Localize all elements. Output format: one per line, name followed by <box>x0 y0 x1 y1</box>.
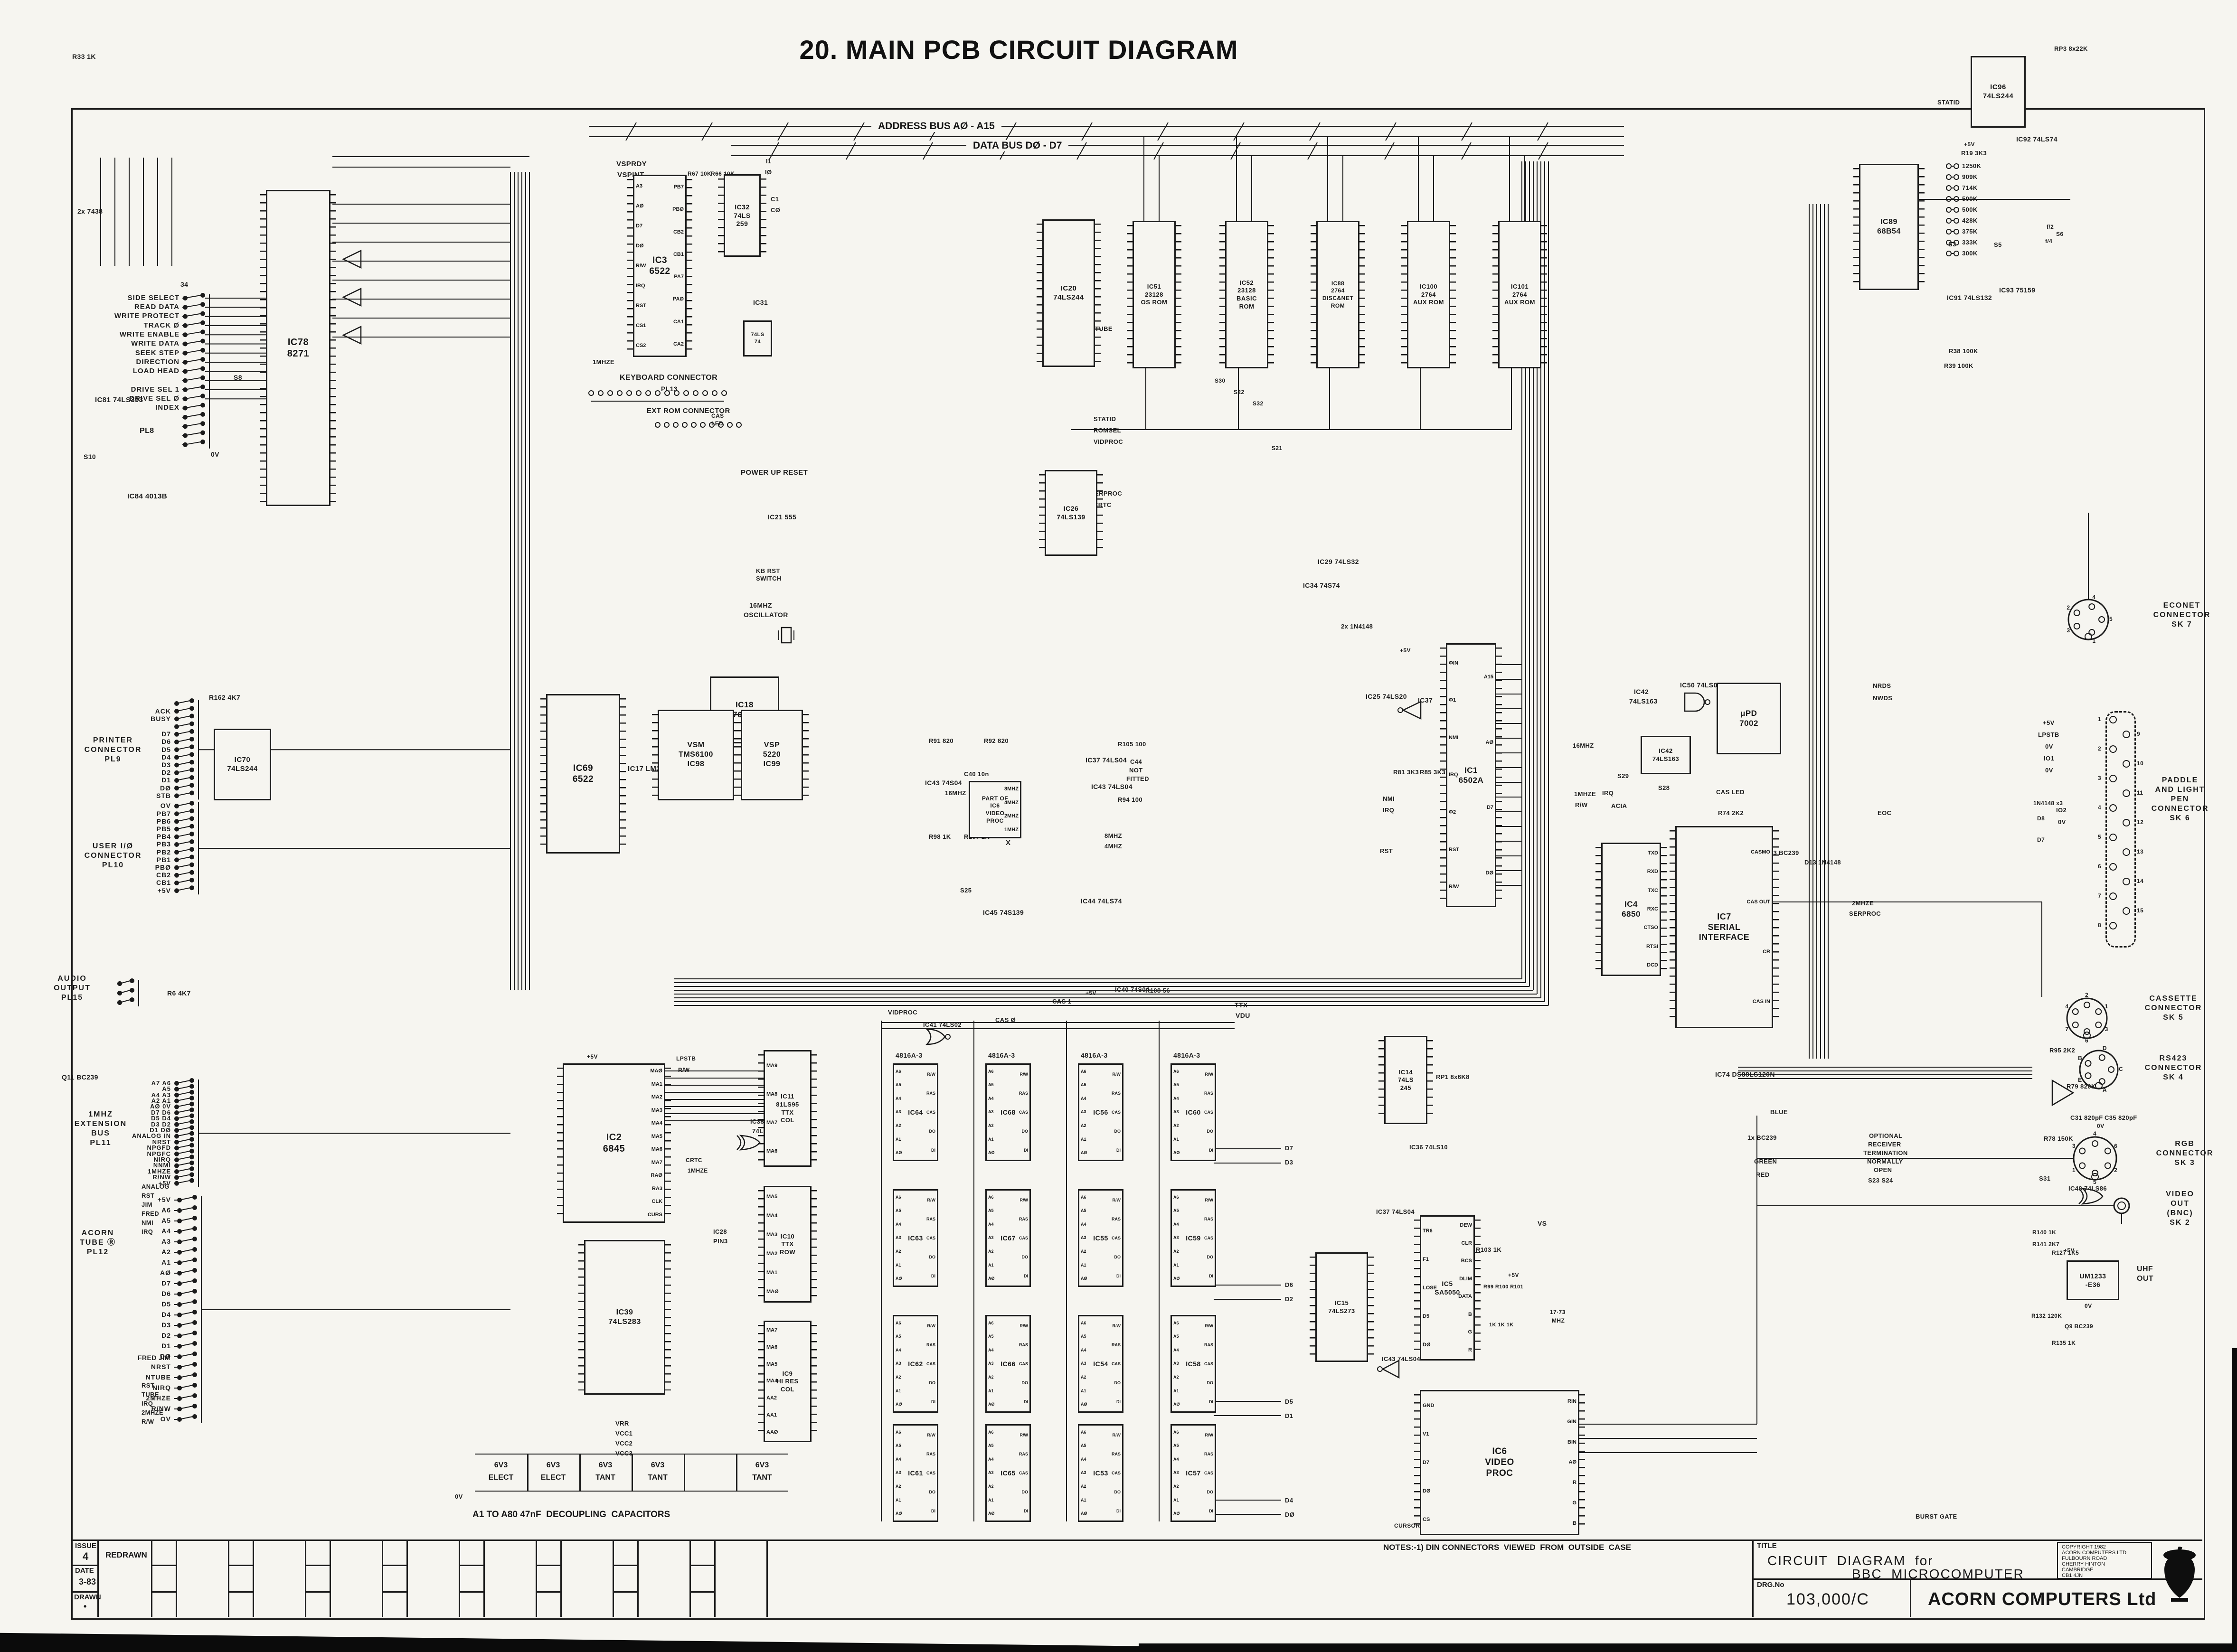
pin-stubs <box>685 179 692 353</box>
pin-name: A3 <box>896 1236 901 1240</box>
pin-name: RAS <box>1204 1343 1213 1347</box>
pin-name: A3 <box>988 1110 994 1114</box>
cap-spec: TANT <box>632 1474 684 1482</box>
pin-name: DI <box>1209 1509 1213 1513</box>
cap-spec: 6V3 <box>579 1461 632 1470</box>
ic-label: IC99 <box>764 760 781 769</box>
pin-name: DI <box>1209 1148 1213 1153</box>
pin-name: CAS <box>926 1471 935 1475</box>
pin-name: A1 <box>896 1137 901 1142</box>
ic-label: ROW <box>780 1249 795 1256</box>
ic-label: IC62 <box>908 1361 923 1368</box>
ic-label: UM1233 <box>2080 1273 2106 1280</box>
pin-name: A5 <box>988 1444 994 1448</box>
ic-label: IC9 <box>783 1370 793 1377</box>
pin-stubs <box>1267 225 1274 364</box>
pin-stubs <box>1310 1257 1317 1358</box>
pin-name: A6 <box>988 1070 994 1074</box>
pin-name: V1 <box>1423 1432 1429 1437</box>
ic-block-ic7: IC7SERIALINTERFACECASMOCAS OUTCRCAS IN <box>1675 826 1773 1028</box>
ic-block-ic98: VSMTMS6100IC98 <box>658 710 734 800</box>
pin-name: AA1 <box>766 1413 777 1418</box>
pin-name: A1 <box>896 1389 901 1393</box>
pin-name: A3 <box>1173 1361 1179 1366</box>
pin-name: A4 <box>1081 1097 1086 1101</box>
ic-label: 5220 <box>763 751 781 759</box>
ic-label: 259 <box>736 220 748 227</box>
pin-names: R/WRASCASDODI <box>926 1426 935 1521</box>
pin-stubs <box>627 179 634 353</box>
pin-stubs <box>1440 648 1447 903</box>
ic-label: 81LS95 <box>776 1101 799 1108</box>
ic-label: ROM <box>1331 303 1345 309</box>
pin-stubs <box>1772 830 1779 1024</box>
ic-label: 74LS163 <box>1652 756 1679 762</box>
pin-name: A5 <box>1081 1334 1086 1339</box>
pin-name: RAS <box>1112 1091 1121 1096</box>
pin-name: DO <box>1207 1255 1214 1259</box>
pin-name: DCD <box>1647 963 1658 968</box>
pin-stubs <box>802 714 809 796</box>
pin-stubs <box>1473 1220 1481 1356</box>
pin-name: AØ <box>896 1277 902 1281</box>
ic-label: IC101 <box>1511 283 1529 290</box>
pin-name: CAS <box>1019 1110 1028 1115</box>
pin-name: A5 <box>896 1444 901 1448</box>
pin-name: PA7 <box>674 274 684 280</box>
pin-names: PB7PBØCB2CB1PA7PAØCA1CA2 <box>672 176 684 356</box>
pin-names: R/WRASCASDODI <box>1112 1191 1121 1286</box>
pin-name: MA1 <box>766 1270 777 1276</box>
pin-name: 1MHZ <box>1004 827 1019 833</box>
ic-label: IC58 <box>1186 1361 1201 1368</box>
ic-block-ic101: IC1012764AUX ROM <box>1498 221 1541 368</box>
ic-label: TTX <box>781 1241 793 1248</box>
pin-name: DI <box>1116 1509 1121 1513</box>
ram-chip-ic66: IC66A6A5A4A3A2A1AØR/WRASCASDODI <box>985 1315 1031 1413</box>
pin-name: CA1 <box>673 319 684 325</box>
pin-names: DEWCLRBCSDLIMDATABGR <box>1458 1217 1472 1359</box>
pin-name: A1 <box>1081 1498 1086 1502</box>
pin-name: R/W <box>1205 1433 1214 1437</box>
pin-name: B <box>1468 1312 1472 1317</box>
pin-names: R/WRASCASDODI <box>1019 1316 1028 1411</box>
ic-label: IC98 <box>688 760 705 769</box>
pin-name: A5 <box>988 1334 994 1339</box>
pin-name: 4MHZ <box>1004 800 1019 806</box>
pin-name: A1 <box>1173 1498 1179 1502</box>
pin-name: MA5 <box>766 1362 777 1367</box>
pin-name: A5 <box>1173 1334 1179 1339</box>
pin-name: A5 <box>988 1083 994 1087</box>
pin-names: R/WRASCASDODI <box>1204 1191 1213 1286</box>
pin-stubs <box>1449 225 1456 364</box>
pin-name: MA6 <box>766 1345 777 1350</box>
ic-label: IC67 <box>1001 1235 1016 1242</box>
pin-name: DO <box>1207 1490 1214 1494</box>
ic-block-ic70: IC7074LS244 <box>214 729 271 800</box>
cap-spec: TANT <box>736 1474 788 1482</box>
pin-name: A2 <box>1081 1124 1086 1128</box>
pin-name: DO <box>1022 1381 1029 1385</box>
ic-label: DISC&NET <box>1322 295 1353 301</box>
pin-stubs <box>1378 1040 1386 1120</box>
pin-name: DO <box>1022 1255 1029 1259</box>
pin-name: R/W <box>1020 1324 1029 1328</box>
pin-name: A5 <box>1081 1209 1086 1213</box>
cap-spec: 6V3 <box>527 1461 579 1470</box>
pin-name: MA1 <box>651 1082 662 1087</box>
pin-name: AØ <box>988 1511 995 1516</box>
pin-name: A1 <box>1081 1137 1086 1142</box>
pin-name: D7 <box>1423 1460 1429 1465</box>
pin-name: MA4 <box>651 1121 662 1126</box>
pin-names: A6A5A4A3A2A1AØ <box>896 1065 902 1160</box>
pin-name: DI <box>931 1509 935 1513</box>
pin-name: A5 <box>988 1209 994 1213</box>
cap-spec: TANT <box>579 1474 632 1482</box>
pin-name: R/W <box>1113 1198 1121 1202</box>
ic-label: IC10 <box>781 1233 794 1240</box>
pin-name: R/W <box>1113 1072 1121 1077</box>
ic-label: IC6 <box>990 803 1000 809</box>
pin-name: A6 <box>1081 1070 1086 1074</box>
pin-names: TXDRXDTXCRXCCTSORTSIDCD <box>1643 844 1658 975</box>
ic-label: HI RES <box>776 1378 798 1385</box>
pin-name: GND <box>1423 1403 1434 1408</box>
pin-name: CB2 <box>673 230 684 235</box>
pin-name: DØ <box>1486 871 1494 876</box>
pin-stubs <box>1917 168 1925 286</box>
ic-label: AUX ROM <box>1413 299 1444 306</box>
pin-name: A2 <box>1173 1484 1179 1489</box>
ic-block-ic100: IC1002764AUX ROM <box>1407 221 1450 368</box>
pin-name: CAS <box>926 1362 935 1366</box>
ic-label: IC63 <box>908 1235 923 1242</box>
pin-name: DI <box>931 1400 935 1404</box>
pin-name: R/W <box>1020 1433 1029 1437</box>
pin-name: CAS <box>1112 1362 1121 1366</box>
pin-stubs <box>810 1190 817 1298</box>
ic-label: OS ROM <box>1141 299 1168 306</box>
pin-name: DO <box>1022 1490 1029 1494</box>
pin-stubs <box>329 194 336 502</box>
ic-label: 74LS139 <box>1057 514 1085 521</box>
pin-name: DØ <box>636 244 644 249</box>
pin-name: R/W <box>1113 1433 1121 1437</box>
pin-name: TXC <box>1648 888 1658 893</box>
pin-name: RAS <box>1112 1217 1121 1221</box>
ic-block-ic6: IC6VIDEOPROCGNDV1D7DØCSRINGINBINAØRGB <box>1420 1390 1579 1535</box>
pin-name: CAS <box>1204 1471 1213 1475</box>
acorn-logo-icon <box>2160 1547 2200 1604</box>
pin-name: AØ <box>1173 1402 1180 1407</box>
pin-name: R/W <box>927 1433 936 1437</box>
pin-stubs <box>759 178 766 253</box>
pin-name: AØ <box>1173 1277 1180 1281</box>
ic-block-ic20: IC2074LS244 <box>1042 219 1095 367</box>
ic-label: SERIAL <box>1708 923 1740 932</box>
pin-name: A6 <box>1173 1070 1179 1074</box>
ram-chip-ic64: IC64A6A5A4A3A2A1AØR/WRASCASDODI <box>893 1063 938 1161</box>
pin-name: A6 <box>988 1321 994 1325</box>
ic-block-ic42: IC4274LS163 <box>1641 736 1691 774</box>
ic-label: IC68 <box>1001 1109 1016 1116</box>
pin-name: 2MHZ <box>1004 814 1019 819</box>
ic-label: IC4 <box>1624 900 1638 909</box>
ic-label: 7002 <box>1739 719 1758 728</box>
pin-stubs <box>1853 168 1860 286</box>
ic-label: IC32 <box>735 204 750 211</box>
pin-name: A2 <box>896 1124 901 1128</box>
pin-name: A2 <box>896 1484 901 1489</box>
pin-name: CASMO <box>1751 850 1770 855</box>
pin-stubs <box>1401 225 1408 364</box>
pin-name: R <box>1468 1348 1472 1353</box>
address-bus-label: ADDRESS BUS AØ - A15 <box>871 121 1001 132</box>
pin-name: RST <box>636 303 646 309</box>
pin-name: CAS <box>1204 1236 1213 1240</box>
ic-label: 2764 <box>1331 288 1345 294</box>
pin-stubs <box>1660 847 1667 972</box>
pin-stubs <box>735 714 742 796</box>
pin-name: A5 <box>1173 1444 1179 1448</box>
ic-label: 2764 <box>1421 291 1436 298</box>
pin-name: RAS <box>1019 1091 1028 1096</box>
ic-label: IC61 <box>908 1470 923 1477</box>
pin-name: AØ <box>896 1511 902 1516</box>
pin-names: R/WRASCASDODI <box>1112 1065 1121 1160</box>
ic-label: IC69 <box>573 764 593 773</box>
ic-label: 68B54 <box>1877 228 1901 236</box>
pin-stubs <box>260 194 267 502</box>
pin-name: BIN <box>1567 1440 1576 1445</box>
pin-names: R/WRASCASDODI <box>926 1065 935 1160</box>
pin-name: R/W <box>1205 1198 1214 1202</box>
ram-chip-ic57: IC57A6A5A4A3A2A1AØR/WRASCASDODI <box>1170 1424 1216 1522</box>
pin-name: CAS <box>1019 1362 1028 1366</box>
pin-name: AØ <box>1081 1277 1087 1281</box>
pin-names: 8MHZ4MHZ2MHZ1MHZ <box>1004 782 1019 837</box>
pin-names: ΦINΦ1NMIIRQΦ2RSTR/W <box>1449 645 1459 906</box>
pin-name: ΦIN <box>1449 661 1458 666</box>
copyright-line: CHERRY HINTON <box>2062 1561 2105 1567</box>
pin-name: DI <box>931 1274 935 1278</box>
pin-name: A2 <box>1081 1249 1086 1254</box>
pin-name: A4 <box>896 1222 901 1227</box>
pin-name: A1 <box>1081 1263 1086 1267</box>
pin-name: NMI <box>1449 735 1458 741</box>
ic-label: IC70 <box>235 756 251 764</box>
cap-spec: ELECT <box>475 1474 527 1482</box>
ic-label: IC89 <box>1880 218 1897 226</box>
table-divider <box>736 1455 737 1491</box>
pin-name: RAS <box>926 1217 935 1221</box>
ic-label: VSP <box>764 742 780 750</box>
copyright-line: CAMBRIDGE <box>2062 1567 2094 1573</box>
pin-name: CAS <box>1112 1110 1121 1115</box>
pin-name: A1 <box>1173 1389 1179 1393</box>
ic-label: SA5050 <box>1435 1289 1460 1296</box>
pin-name: MA6 <box>766 1149 777 1154</box>
ic-label: 6502A <box>1459 776 1484 785</box>
pin-name: DØ <box>1423 1342 1431 1348</box>
pin-stubs <box>758 1054 765 1163</box>
pin-name: A6 <box>896 1430 901 1435</box>
pin-name: MAØ <box>766 1289 779 1295</box>
pin-name: A2 <box>1173 1124 1179 1128</box>
ic-label: IC59 <box>1186 1235 1201 1242</box>
pin-name: CLK <box>651 1199 662 1204</box>
pin-name: RXD <box>1647 869 1658 874</box>
pin-name: A3 <box>896 1361 901 1366</box>
pin-name: A2 <box>988 1249 994 1254</box>
ram-chip-ic54: IC54A6A5A4A3A2A1AØR/WRASCASDODI <box>1078 1315 1123 1413</box>
pin-name: CA2 <box>673 342 684 347</box>
pin-name: DO <box>929 1490 936 1494</box>
pin-name: A2 <box>988 1124 994 1128</box>
ram-chip-ic65: IC65A6A5A4A3A2A1AØR/WRASCASDODI <box>985 1424 1031 1522</box>
ic-label: 74LS <box>1398 1077 1414 1083</box>
pin-name: B <box>1573 1521 1576 1526</box>
ic-label: IC56 <box>1093 1109 1108 1116</box>
ic-label: 74 <box>755 339 761 345</box>
pin-stubs <box>1414 1220 1421 1356</box>
pin-name: A4 <box>1081 1348 1086 1352</box>
pin-name: A1 <box>1173 1137 1179 1142</box>
table-divider <box>579 1455 581 1491</box>
pin-name: A4 <box>1173 1348 1179 1352</box>
pin-name: AØ <box>988 1277 995 1281</box>
pin-name: A1 <box>988 1263 994 1267</box>
ic-label: IC26 <box>1064 505 1079 512</box>
pin-name: A4 <box>988 1222 994 1227</box>
ic-block-ic6clk: PART OFIC6VIDEOPROC8MHZ4MHZ2MHZ1MHZ <box>969 781 1021 838</box>
ic-block-ic69: IC696522 <box>546 694 620 854</box>
pin-stubs <box>1495 648 1502 903</box>
ic-block-ic15: IC1574LS273 <box>1315 1252 1368 1362</box>
pin-name: CLR <box>1461 1241 1472 1246</box>
ic-label: 6845 <box>603 1144 625 1154</box>
cap-spec: 6V3 <box>736 1461 788 1470</box>
pin-name: A3 <box>636 184 642 189</box>
ic-label: 74LS <box>751 332 764 338</box>
pin-name: DI <box>1116 1400 1121 1404</box>
pin-names: MAØMA1MA2MA3MA4MA5MA6MA7RAØRA3CLKCURS <box>648 1065 662 1221</box>
pin-names: CASMOCAS OUTCRCAS IN <box>1747 827 1771 1027</box>
pin-name: A3 <box>988 1471 994 1475</box>
pin-name: A3 <box>896 1471 901 1475</box>
pin-name: DI <box>1116 1148 1121 1153</box>
pin-name: A3 <box>1081 1110 1086 1114</box>
pin-name: CR <box>1763 949 1770 955</box>
ic-label: 6522 <box>573 775 594 784</box>
ic-label: VIDEO <box>986 810 1005 817</box>
ic-label: 8271 <box>287 349 310 359</box>
pin-name: RAS <box>1019 1343 1028 1347</box>
ic-label: ROM <box>1239 303 1255 310</box>
pin-name: A1 <box>988 1137 994 1142</box>
ic-label: PROC <box>986 818 1004 824</box>
ram-chip-ic59: IC59A6A5A4A3A2A1AØR/WRASCASDODI <box>1170 1189 1216 1287</box>
pin-name: DI <box>1024 1509 1028 1513</box>
ic-label: COL <box>781 1386 794 1393</box>
pin-name: RIN <box>1567 1399 1576 1404</box>
pin-stubs <box>1540 225 1547 364</box>
ic-label: µPD <box>1741 709 1757 718</box>
ic-block-ic89: IC8968B54 <box>1859 164 1919 290</box>
pin-names: A6A5A4A3A2A1AØ <box>988 1191 995 1286</box>
pin-stubs <box>718 178 725 253</box>
pin-stubs <box>557 1068 564 1219</box>
ic-block-ic5: IC5SA5050TR6F1LOSED5DØDEWCLRBCSDLIMDATAB… <box>1420 1215 1475 1361</box>
pin-name: AAØ <box>766 1430 778 1435</box>
pin-names: R/WRASCASDODI <box>1204 1065 1213 1160</box>
pin-name: A2 <box>1173 1249 1179 1254</box>
pin-name: MA5 <box>651 1134 662 1139</box>
ic-block-ic1: IC16502AΦINΦ1NMIIRQΦ2RSTR/WA15AØD7DØ <box>1446 643 1496 907</box>
copyright-line: CB1 4JN <box>2062 1573 2083 1578</box>
pin-stubs <box>652 714 659 796</box>
ic-label: IC6 <box>1492 1447 1507 1456</box>
paddle-connector-outline <box>2105 711 2136 948</box>
pin-name: RXC <box>1647 907 1658 912</box>
pin-names: A6A5A4A3A2A1AØ <box>1173 1191 1180 1286</box>
pin-stubs <box>1311 225 1318 364</box>
pin-name: RTSI <box>1646 944 1658 949</box>
pin-name: MA4 <box>766 1213 777 1219</box>
pin-name: A1 <box>988 1389 994 1393</box>
pin-name: A5 <box>896 1083 901 1087</box>
pin-name: MA8 <box>766 1092 777 1097</box>
ic-label: IC2 <box>606 1133 622 1143</box>
ic-block-ic99: VSP5220IC99 <box>741 710 803 800</box>
pin-stubs <box>1578 1394 1585 1531</box>
pin-stubs <box>1426 1040 1433 1120</box>
pin-name: DO <box>1114 1490 1121 1494</box>
ic-label: IC1 <box>1464 766 1478 775</box>
ram-chip-ic56: IC56A6A5A4A3A2A1AØR/WRASCASDODI <box>1078 1063 1123 1161</box>
pin-stubs <box>1094 224 1101 363</box>
pin-name: R/W <box>1205 1072 1214 1077</box>
pin-name: CB1 <box>673 252 684 257</box>
pin-name: R/W <box>636 263 646 269</box>
pin-name: A6 <box>988 1430 994 1435</box>
pin-names: A3AØD7DØR/WIRQRSTCS1CS2 <box>636 176 646 356</box>
pin-names: A6A5A4A3A2A1AØ <box>1081 1426 1087 1521</box>
pin-name: AØ <box>1173 1151 1180 1155</box>
pin-name: RAS <box>1204 1091 1213 1096</box>
pin-name: RAS <box>926 1452 935 1456</box>
ic-label: 74LS283 <box>608 1318 641 1326</box>
pin-name: R/W <box>1020 1198 1029 1202</box>
pin-name: DO <box>929 1381 936 1385</box>
ic-label: 74LS244 <box>1053 294 1084 301</box>
pin-stubs <box>664 1068 671 1219</box>
pin-stubs <box>540 698 547 849</box>
pin-name: R/W <box>927 1198 936 1202</box>
pin-stubs <box>1174 225 1181 364</box>
ic-block-um1233: UM1233-E36 <box>2067 1260 2119 1300</box>
pin-name: DI <box>1209 1400 1213 1404</box>
pin-name: DI <box>1116 1274 1121 1278</box>
pin-name: MA4 <box>766 1379 777 1384</box>
ic-label: TMS6100 <box>679 751 713 759</box>
pin-names: RINGINBINAØRGB <box>1567 1391 1576 1534</box>
pin-names: R/WRASCASDODI <box>1204 1426 1213 1521</box>
pin-name: A15 <box>1484 675 1493 680</box>
pin-names: A6A5A4A3A2A1AØ <box>1081 1191 1087 1286</box>
